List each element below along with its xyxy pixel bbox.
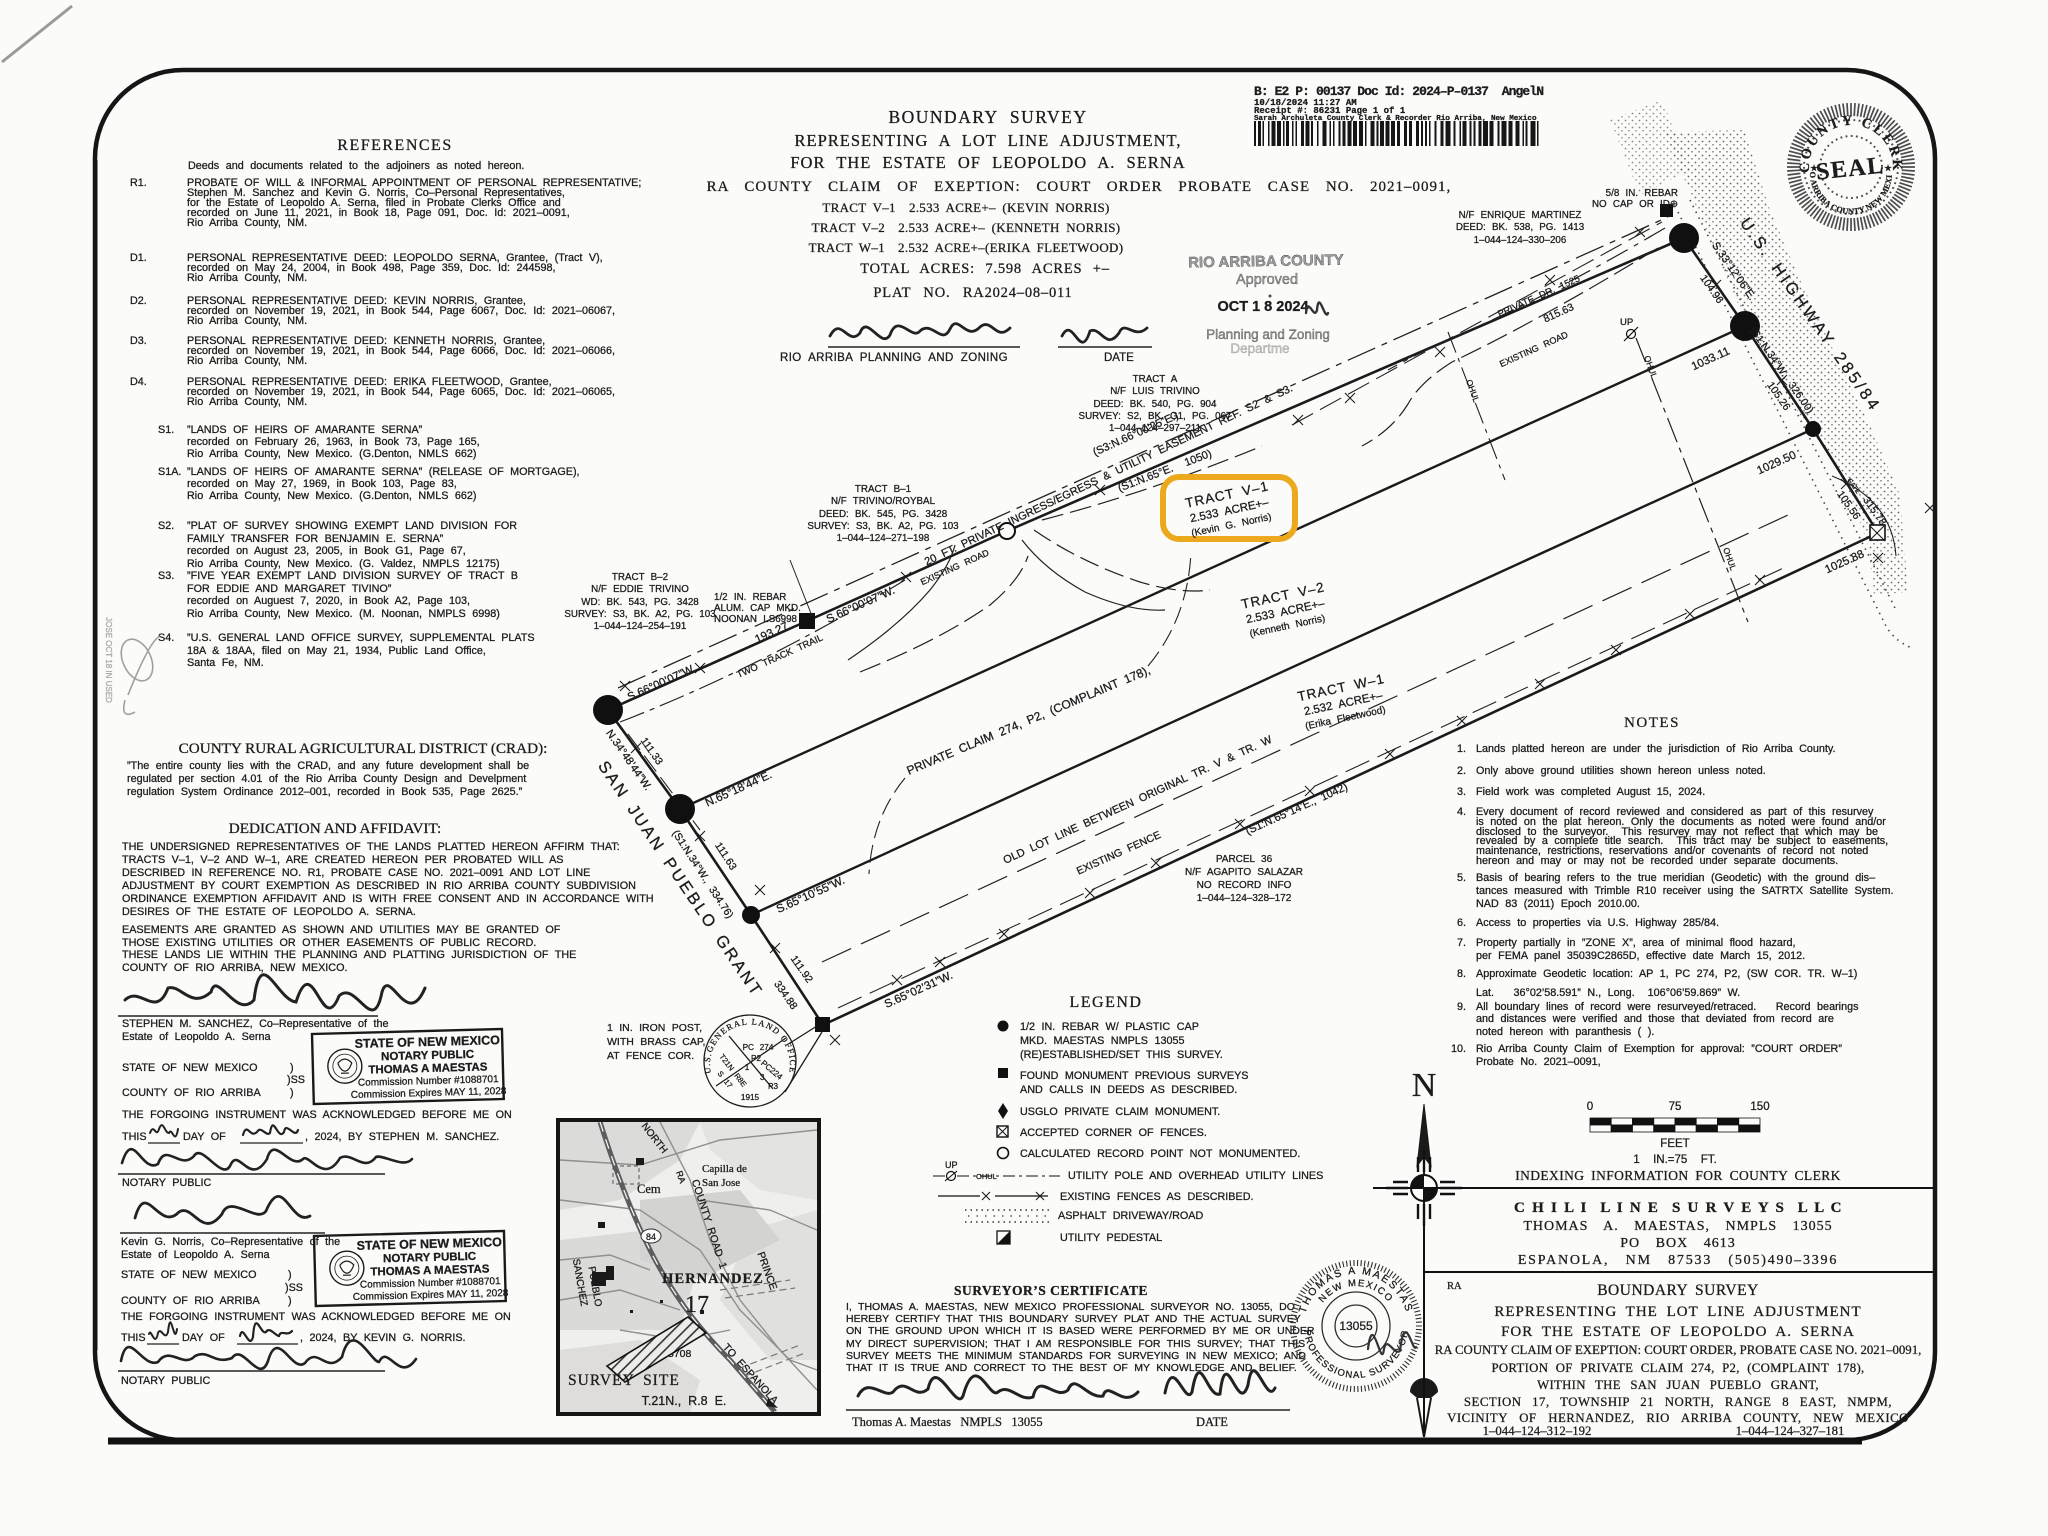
svg-text:DEED: BK. 538, PG. 1413: DEED: BK. 538, PG. 1413 [1456, 222, 1585, 233]
svg-text:TRACT A: TRACT A [1133, 374, 1178, 385]
svg-text:ESPANOLA, NM 87533 (505)490–33: ESPANOLA, NM 87533 (505)490–3396 [1518, 1253, 1838, 1268]
svg-text:Estate of Leopoldo A. Serna: Estate of Leopoldo A. Serna [122, 1031, 270, 1043]
svg-text:1–044–124–254–191: 1–044–124–254–191 [594, 621, 687, 632]
svg-text:D2.: D2. [130, 295, 147, 307]
svg-text:DATE: DATE [1196, 1415, 1228, 1429]
svg-text:Only above ground utilities sh: Only above ground utilities shown hereon… [1476, 765, 1766, 777]
svg-text:104.96: 104.96 [1697, 273, 1725, 306]
svg-text:OCT 1 8 2024: OCT 1 8 2024 [1217, 299, 1308, 315]
svg-text:COUNTY OF RIO ARRIBA: COUNTY OF RIO ARRIBA [122, 1087, 261, 1099]
svg-text:RA COUNTY CLAIM OF EXEPTION: C: RA COUNTY CLAIM OF EXEPTION: COURT ORDER… [707, 179, 1452, 195]
svg-text:SURVEY: S3, BK. A2, PG. 103: SURVEY: S3, BK. A2, PG. 103 [807, 521, 959, 532]
svg-text:10.: 10. [1451, 1043, 1466, 1055]
svg-text:DEDICATION AND AFFIDAVIT:: DEDICATION AND AFFIDAVIT: [229, 820, 441, 837]
svg-text:RA COUNTY CLAIM OF EXEPTION: C: RA COUNTY CLAIM OF EXEPTION: COURT ORDER… [1435, 1343, 1922, 1357]
svg-text:84: 84 [646, 1232, 656, 1242]
svg-text:2.: 2. [1457, 765, 1466, 777]
svg-text:recorded on February 26, 1963,: recorded on February 26, 1963, in Book 7… [187, 436, 480, 448]
svg-text:UTILITY POLE AND OVERHEAD UTIL: UTILITY POLE AND OVERHEAD UTILITY LINES [1068, 1170, 1323, 1182]
svg-text:VICINITY OF HERNANDEZ, RIO ARR: VICINITY OF HERNANDEZ, RIO ARRIBA COUNTY… [1447, 1411, 1909, 1425]
svg-text:S1.: S1. [158, 424, 174, 436]
svg-text:1–044–124–328–172: 1–044–124–328–172 [1197, 893, 1292, 904]
svg-text:Lands platted hereon are under: Lands platted hereon are under the juris… [1476, 743, 1836, 755]
svg-text:1 IN. IRON POST,: 1 IN. IRON POST, [607, 1022, 702, 1034]
svg-text:HEREBY CERTIFY THAT THIS BOUND: HEREBY CERTIFY THAT THIS BOUNDARY SURVEY… [846, 1313, 1301, 1325]
svg-text:THOSE EXISTING UTILITIES OR OT: THOSE EXISTING UTILITIES OR OTHER EASEME… [122, 937, 536, 949]
svg-text:SURVEY MEETS THE MINIMUM STAND: SURVEY MEETS THE MINIMUM STANDARDS FOR S… [846, 1350, 1306, 1362]
svg-text:7.: 7. [1457, 937, 1466, 949]
svg-text:TOTAL ACRES: 7.598 ACRES +–: TOTAL ACRES: 7.598 ACRES +– [860, 261, 1110, 277]
svg-text:Probate No. 2021–0091,: Probate No. 2021–0091, [1476, 1056, 1601, 1068]
svg-text:regulation System Ordinance 20: regulation System Ordinance 2012–001, re… [127, 786, 523, 798]
svg-text:AND CALLS IN DEEDS AS DESCRIBE: AND CALLS IN DEEDS AS DESCRIBED. [1020, 1084, 1237, 1096]
svg-text:NOTARY PUBLIC: NOTARY PUBLIC [121, 1375, 211, 1387]
svg-text:DEED: BK. 540, PG. 904: DEED: BK. 540, PG. 904 [1094, 399, 1217, 410]
svg-text:PARCEL 36: PARCEL 36 [1216, 854, 1273, 865]
svg-text:FEET: FEET [1660, 1138, 1689, 1150]
svg-text:THOMAS A. MAESTAS, NMPLS 13055: THOMAS A. MAESTAS, NMPLS 13055 [1523, 1219, 1832, 1234]
svg-text:CALCULATED RECORD POINT NOT MO: CALCULATED RECORD POINT NOT MONUMENTED. [1020, 1148, 1300, 1160]
svg-text:EXISTING FENCES AS DESCRIBED.: EXISTING FENCES AS DESCRIBED. [1060, 1191, 1254, 1203]
svg-text:OHUL: OHUL [1642, 354, 1660, 380]
svg-text:N.65°18’44”E.: N.65°18’44”E. [704, 769, 774, 809]
svg-text:per FEMA panel 35039C2865D, ef: per FEMA panel 35039C2865D, effective da… [1476, 950, 1805, 962]
svg-text:3.: 3. [1457, 786, 1466, 798]
svg-text:D1.: D1. [130, 252, 147, 264]
svg-text:Rio Arriba County, NM.: Rio Arriba County, NM. [187, 396, 307, 408]
svg-text:TRACT B–1: TRACT B–1 [855, 484, 911, 495]
svg-text:17: 17 [685, 1292, 709, 1318]
svg-text:1/2 IN. REBAR W/ PLASTIC CAP: 1/2 IN. REBAR W/ PLASTIC CAP [1020, 1021, 1199, 1033]
svg-text:Rio Arriba County, New Mexico.: Rio Arriba County, New Mexico. (G. Valde… [187, 558, 500, 570]
svg-text:STATE OF NEW MEXICO: STATE OF NEW MEXICO [121, 1269, 256, 1281]
svg-text:1.: 1. [1457, 743, 1466, 755]
svg-text:1: 1 [745, 1063, 750, 1072]
svg-text:4.: 4. [1457, 806, 1466, 818]
svg-text:S.66°00’07”W.: S.66°00’07”W. [825, 585, 897, 626]
svg-text:STATE OF NEW MEXICO: STATE OF NEW MEXICO [122, 1062, 257, 1074]
svg-text:S3.: S3. [158, 570, 174, 582]
svg-text:NOTARY PUBLIC: NOTARY PUBLIC [122, 1177, 212, 1189]
svg-text:S2.: S2. [158, 520, 174, 532]
svg-text:FAMILY TRANSFER FOR BENJAMIN E: FAMILY TRANSFER FOR BENJAMIN E. SERNA” [187, 533, 444, 545]
svg-text:THAT IT IS TRUE AND CORRECT TO: THAT IT IS TRUE AND CORRECT TO THE BEST … [846, 1362, 1297, 1374]
svg-text:NOONAN LS6998: NOONAN LS6998 [714, 614, 798, 625]
svg-text:TWO TRACK TRAIL: TWO TRACK TRAIL [735, 633, 824, 681]
svg-text:C H I L I L I N E S U R V E: C H I L I L I N E S U R V E Y S L L C [1514, 1200, 1842, 1216]
svg-text:USGLO PRIVATE CLAIM MONUMENT.: USGLO PRIVATE CLAIM MONUMENT. [1020, 1106, 1220, 1118]
svg-text:R1.: R1. [130, 177, 147, 189]
svg-text:REFERENCES: REFERENCES [337, 137, 452, 154]
svg-text:ORDINANCE EXEMPTION AFFIDAVIT: ORDINANCE EXEMPTION AFFIDAVIT AND IS WIT… [122, 893, 654, 905]
svg-text:DESCRIBED IN REFERENCE NO. R1,: DESCRIBED IN REFERENCE NO. R1, PROBATE C… [122, 867, 590, 879]
svg-text:Approximate Geodetic location:: Approximate Geodetic location: AP 1, PC … [1476, 968, 1857, 980]
svg-text:5.: 5. [1457, 872, 1466, 884]
svg-text:Property partially in ”ZONE X”: Property partially in ”ZONE X”, area of … [1476, 937, 1796, 949]
svg-text:PROFESSIONAL SURVEYOR: PROFESSIONAL SURVEYOR [1301, 1329, 1411, 1381]
svg-text:regulated per section 4.01 of: regulated per section 4.01 of the Rio Ar… [127, 773, 526, 785]
svg-text:COUNTY OF RIO ARRIBA, NEW MEXI: COUNTY OF RIO ARRIBA, NEW MEXICO. [122, 962, 347, 974]
svg-text:1915: 1915 [741, 1093, 760, 1102]
svg-text:”The entire county lies with t: ”The entire county lies with the CRAD, a… [127, 760, 529, 772]
svg-text:I, THOMAS A. MAESTAS, NEW MEXI: I, THOMAS A. MAESTAS, NEW MEXICO PROFESS… [846, 1301, 1295, 1313]
svg-text:NOTES: NOTES [1624, 715, 1680, 731]
svg-text:Rio Arriba County, NM.: Rio Arriba County, NM. [187, 315, 307, 327]
svg-text:18A & 18AA, filed on May 21, 1: 18A & 18AA, filed on May 21, 1934, Publi… [187, 645, 486, 657]
svg-text:Rio Arriba County, New Mexico.: Rio Arriba County, New Mexico. (G.Denton… [187, 448, 477, 460]
svg-text:MY DIRECT SUPERVISION; THAT I: MY DIRECT SUPERVISION; THAT I AM RESPONS… [846, 1338, 1305, 1350]
svg-text:N/F TRIVINO/ROYBAL: N/F TRIVINO/ROYBAL [831, 496, 936, 507]
svg-text:SECTION 17, TOWNSHIP 21 NORTH,: SECTION 17, TOWNSHIP 21 NORTH, RANGE 8 E… [1464, 1395, 1892, 1409]
svg-text:AT FENCE COR.: AT FENCE COR. [607, 1050, 694, 1062]
svg-text:TRACT W–1 2.532 ACRE+–(ERIKA: TRACT W–1 2.532 ACRE+–(ERIKA FLEETWOOD) [809, 240, 1124, 255]
svg-text:Santa Fe, NM.: Santa Fe, NM. [187, 657, 264, 669]
svg-text:recorded on August 23, 2005, i: recorded on August 23, 2005, in Book G1,… [187, 545, 466, 557]
svg-text:P2: P2 [751, 1054, 761, 1063]
svg-text:111.92: 111.92 [788, 953, 815, 985]
svg-text:STATE OF NEW MEXICO: STATE OF NEW MEXICO [354, 1033, 500, 1051]
svg-text:NAD 83 (2011) Epoch 2010.00.: NAD 83 (2011) Epoch 2010.00. [1476, 898, 1640, 910]
svg-text:Departme: Departme [1230, 341, 1289, 356]
svg-text:REPRESENTING THE LOT LINE ADJU: REPRESENTING THE LOT LINE ADJUSTMENT [1494, 1304, 1861, 1320]
svg-text:B: E2 P: 00137 Doc Id: 2024–P–: B: E2 P: 00137 Doc Id: 2024–P–0137 Angel… [1254, 84, 1544, 99]
svg-text:N/F EDDIE TRIVINO: N/F EDDIE TRIVINO [591, 584, 689, 595]
svg-text:N/F LUIS TRIVINO: N/F LUIS TRIVINO [1110, 386, 1200, 397]
svg-text:EXISTING ROAD: EXISTING ROAD [1498, 329, 1570, 369]
svg-text:”LANDS OF HEIRS OF AMARANTE SE: ”LANDS OF HEIRS OF AMARANTE SERNA” (RELE… [187, 466, 580, 478]
svg-text:EASEMENTS ARE GRANTED AS SHOWN: EASEMENTS ARE GRANTED AS SHOWN AND UTILI… [122, 924, 561, 936]
svg-text:THESE LANDS LIE WITHIN THE PLA: THESE LANDS LIE WITHIN THE PLANNING AND … [122, 949, 576, 961]
svg-text:All boundary lines of record w: All boundary lines of record were resurv… [1476, 1001, 1859, 1013]
svg-text:FOR THE ESTATE OF LEOPOLDO A.: FOR THE ESTATE OF LEOPOLDO A. SERNA [790, 153, 1185, 172]
svg-text:THIS: THIS [122, 1131, 147, 1143]
svg-text:hereon and may or may not be r: hereon and may or may not be recorded un… [1476, 855, 1838, 867]
svg-text:)SS: )SS [287, 1074, 305, 1086]
svg-text:OHUL: OHUL [1464, 378, 1482, 404]
svg-text:): ) [288, 1269, 292, 1281]
svg-text:RA: RA [1447, 1281, 1462, 1292]
svg-text:NOTARY PUBLIC: NOTARY PUBLIC [381, 1049, 474, 1063]
svg-text:DAY OF: DAY OF [182, 1332, 225, 1344]
svg-text:1/2 IN. REBAR: 1/2 IN. REBAR [714, 592, 786, 603]
svg-text:DATE: DATE [1104, 352, 1134, 364]
svg-text:THIS: THIS [121, 1332, 146, 1344]
svg-text:111.63: 111.63 [712, 840, 739, 872]
svg-text:)SS: )SS [285, 1282, 303, 1294]
svg-text:6.: 6. [1457, 917, 1466, 929]
svg-text:1–044–124–297–211: 1–044–124–297–211 [1109, 423, 1201, 434]
svg-text:MKD. MAESTAS NMPLS 13055: MKD. MAESTAS NMPLS 13055 [1020, 1035, 1185, 1047]
svg-text:111.33: 111.33 [638, 735, 665, 767]
svg-text:75: 75 [1669, 1101, 1682, 1113]
svg-text:150: 150 [1750, 1101, 1769, 1113]
svg-text:Rio Arriba County, New Mexico.: Rio Arriba County, New Mexico. (M. Noona… [187, 608, 500, 620]
svg-text:3: 3 [760, 1073, 765, 1082]
svg-text:ALUM. CAP MKD.: ALUM. CAP MKD. [714, 603, 801, 614]
svg-text:1–044–124–312–192: 1–044–124–312–192 [1483, 1424, 1592, 1438]
svg-text:COUNTY RURAL AGRICULTURAL DIST: COUNTY RURAL AGRICULTURAL DISTRICT (CRAD… [179, 740, 548, 757]
svg-text:P3: P3 [768, 1082, 778, 1091]
svg-text:recorded on May 27, 1969, in B: recorded on May 27, 1969, in Book 103, P… [187, 478, 457, 490]
svg-text:0: 0 [1587, 1101, 1593, 1113]
svg-text:N: N [1412, 1067, 1437, 1104]
svg-text:THOMAS A MAESTAS: THOMAS A MAESTAS [1297, 1265, 1415, 1315]
svg-text:OHUL: OHUL [976, 1172, 997, 1181]
svg-text:tances measured with Trimble R: tances measured with Trimble R10 receive… [1476, 885, 1893, 897]
svg-text:9.: 9. [1457, 1001, 1466, 1013]
svg-text:DESIRES OF THE ESTATE OF LEOPO: DESIRES OF THE ESTATE OF LEOPOLDO A. SER… [122, 906, 416, 918]
svg-text:Cem: Cem [637, 1182, 661, 1196]
svg-text:UP: UP [945, 1160, 958, 1170]
svg-text:PRIVATE CLAIM 274, P2, (COMPLA: PRIVATE CLAIM 274, P2, (COMPLAINT 178), [905, 663, 1153, 778]
svg-text:Rio Arriba County, NM.: Rio Arriba County, NM. [187, 217, 307, 229]
svg-text:FOR THE ESTATE OF LEOPOLDO A.: FOR THE ESTATE OF LEOPOLDO A. SERNA [1501, 1324, 1855, 1340]
svg-text:Estate of Leopoldo A. Serna: Estate of Leopoldo A. Serna [121, 1249, 269, 1261]
svg-text:TRACT V–2 2.533 ACRE+– (KENNE: TRACT V–2 2.533 ACRE+– (KENNETH NORRIS) [812, 220, 1121, 235]
svg-text:NO RECORD INFO: NO RECORD INFO [1197, 880, 1292, 891]
svg-text:TRACT B–2: TRACT B–2 [612, 572, 668, 583]
svg-text:5/8 IN. REBAR: 5/8 IN. REBAR [1606, 188, 1678, 199]
svg-text:NO CAP OR ID⊕: NO CAP OR ID⊕ [1592, 199, 1678, 210]
svg-text:recorded on Auguest 7, 2020, i: recorded on Auguest 7, 2020, in Book A2,… [187, 595, 470, 607]
svg-text:1033.11: 1033.11 [1690, 345, 1732, 373]
svg-text:PO BOX 4613: PO BOX 4613 [1620, 1236, 1735, 1251]
svg-text:Approved: Approved [1236, 272, 1298, 288]
svg-text:noted hereon with paranthesis: noted hereon with paranthesis ( ). [1476, 1026, 1654, 1038]
svg-text:NOTARY PUBLIC: NOTARY PUBLIC [383, 1251, 476, 1265]
svg-text:8.: 8. [1457, 968, 1466, 980]
svg-text:”FIVE YEAR EXEMPT LAND DIVISIO: ”FIVE YEAR EXEMPT LAND DIVISION SURVEY O… [187, 570, 518, 582]
svg-text:STEPHEN M. SANCHEZ, Co–Represe: STEPHEN M. SANCHEZ, Co–Representative of… [122, 1018, 389, 1030]
svg-text:DAY OF: DAY OF [183, 1131, 226, 1143]
svg-text:SEAL: SEAL [1815, 153, 1886, 186]
svg-text:Access to properties via U.S.: Access to properties via U.S. Highway 28… [1476, 917, 1719, 929]
svg-text:ASPHALT DRIVEWAY/ROAD: ASPHALT DRIVEWAY/ROAD [1058, 1210, 1203, 1222]
svg-text:ADJUSTMENT BY COURT EXEMPTION: ADJUSTMENT BY COURT EXEMPTION AS DESCRIB… [122, 880, 636, 892]
svg-text:and distances were verified an: and distances were verified and those th… [1476, 1013, 1834, 1025]
svg-text:LEGEND: LEGEND [1070, 994, 1143, 1011]
svg-text:REPRESENTING A LOT LINE ADJUST: REPRESENTING A LOT LINE ADJUSTMENT, [794, 131, 1181, 150]
svg-text:WITH BRASS CAP,: WITH BRASS CAP, [607, 1036, 705, 1048]
svg-text:UTILITY PEDESTAL: UTILITY PEDESTAL [1060, 1232, 1162, 1244]
svg-text:INDEXING INFORMATION FOR COUNT: INDEXING INFORMATION FOR COUNTY CLERK [1515, 1168, 1841, 1183]
svg-text:THE FORGOING INSTRUMENT WAS AC: THE FORGOING INSTRUMENT WAS ACKNOWLEDGED… [121, 1311, 511, 1323]
svg-text:Capilla de: Capilla de [702, 1163, 747, 1175]
svg-text:SURVEY: S3, BK. A2, PG. 103: SURVEY: S3, BK. A2, PG. 103 [564, 609, 716, 620]
svg-text:THE UNDERSIGNED REPRESENTATIVE: THE UNDERSIGNED REPRESENTATIVES OF THE L… [122, 841, 620, 853]
svg-text:SURVEYOR’S CERTIFICATE: SURVEYOR’S CERTIFICATE [954, 1283, 1148, 1298]
svg-text:S.66°00’07”W.: S.66°00’07”W. [626, 663, 698, 704]
svg-text:N/F AGAPITO SALAZAR: N/F AGAPITO SALAZAR [1185, 867, 1303, 878]
svg-text:ON THE GROUND UPON WHICH IT IS: ON THE GROUND UPON WHICH IT IS BASED WER… [846, 1325, 1315, 1337]
svg-text:S.65°10’55”W.: S.65°10’55”W. [775, 875, 847, 916]
svg-text:Thomas A. Maestas NMPLS 13: Thomas A. Maestas NMPLS 13055 [852, 1415, 1043, 1429]
svg-text:(S1:N.65°14’E., 1042): (S1:N.65°14’E., 1042) [1244, 781, 1350, 837]
svg-text:13055: 13055 [1339, 1319, 1373, 1333]
svg-text:RIO ARRIBA COUNTY: RIO ARRIBA COUNTY [1188, 252, 1344, 272]
svg-text:”PLAT OF SURVEY SHOWING EXEMPT: ”PLAT OF SURVEY SHOWING EXEMPT LAND DIVI… [187, 520, 517, 532]
svg-text:TRACTS V–1, V–2 AND W–1, ARE C: TRACTS V–1, V–2 AND W–1, ARE CREATED HER… [122, 854, 564, 866]
svg-text:Rio Arriba County, NM.: Rio Arriba County, NM. [187, 355, 307, 367]
svg-text:COUNTY OF RIO ARRIBA: COUNTY OF RIO ARRIBA [121, 1295, 260, 1307]
svg-text:DEED: BK. 545, PG. 3428: DEED: BK. 545, PG. 3428 [819, 509, 948, 520]
svg-text:Planning and Zoning: Planning and Zoning [1206, 327, 1330, 342]
svg-text:, 2024, BY STEPHEN M. SANCHEZ.: , 2024, BY STEPHEN M. SANCHEZ. [305, 1131, 499, 1143]
svg-text:815.63: 815.63 [1542, 301, 1576, 325]
svg-text:WD: BK. 543, PG. 3428: WD: BK. 543, PG. 3428 [581, 597, 699, 608]
svg-text:S1A.: S1A. [158, 466, 181, 478]
svg-text:EXISTING FENCE: EXISTING FENCE [1075, 829, 1163, 877]
svg-text:FOR EDDIE AND MARGARET TIVINO”: FOR EDDIE AND MARGARET TIVINO” [187, 583, 392, 595]
svg-text:): ) [288, 1295, 292, 1307]
svg-text:THE FORGOING INSTRUMENT WAS AC: THE FORGOING INSTRUMENT WAS ACKNOWLEDGED… [122, 1109, 512, 1121]
svg-text:): ) [290, 1087, 294, 1099]
svg-text:San Jose: San Jose [702, 1177, 740, 1189]
svg-text:Rio Arriba County, NM.: Rio Arriba County, NM. [187, 272, 307, 284]
svg-text:Kevin G. Norris, Co–Representa: Kevin G. Norris, Co–Representative of th… [121, 1236, 340, 1248]
svg-text:PLAT NO. RA2024–08–011: PLAT NO. RA2024–08–011 [873, 285, 1072, 301]
svg-text:, 2024, BY KEVIN G. NORRIS.: , 2024, BY KEVIN G. NORRIS. [300, 1332, 466, 1344]
svg-text:WITHIN THE SAN JUAN PUEBLO GRA: WITHIN THE SAN JUAN PUEBLO GRANT, [1537, 1378, 1819, 1392]
svg-text:HERNANDEZ: HERNANDEZ [662, 1271, 764, 1287]
svg-text:RIO ARRIBA PLANNING AND ZONING: RIO ARRIBA PLANNING AND ZONING [780, 352, 1008, 364]
svg-text:”LANDS OF HEIRS OF AMARANTE SE: ”LANDS OF HEIRS OF AMARANTE SERNA” [187, 424, 423, 436]
svg-text:): ) [290, 1062, 294, 1074]
svg-text:D4.: D4. [130, 376, 147, 388]
svg-text:D3.: D3. [130, 335, 147, 347]
svg-text:1 IN.=75 FT.: 1 IN.=75 FT. [1633, 1154, 1716, 1166]
svg-text:SURVEY SITE: SURVEY SITE [568, 1372, 680, 1389]
svg-text:ACCEPTED CORNER OF FENCES.: ACCEPTED CORNER OF FENCES. [1020, 1127, 1207, 1139]
svg-text:1–044–124–330–206: 1–044–124–330–206 [1474, 235, 1567, 246]
svg-text:S4.: S4. [158, 632, 174, 644]
svg-text:TRACT V–1 2.533 ACRE+– (KEVIN: TRACT V–1 2.533 ACRE+– (KEVIN NORRIS) [822, 200, 1109, 215]
svg-text:Basis of bearing refers to the: Basis of bearing refers to the true meri… [1476, 872, 1875, 884]
svg-text:★: ★ [1884, 163, 1892, 173]
svg-text:Rio Arriba County, New Mexico.: Rio Arriba County, New Mexico. (G.Denton… [187, 490, 477, 502]
svg-text:BOUNDARY SURVEY: BOUNDARY SURVEY [888, 107, 1087, 127]
svg-text:N/F ENRIQUE MARTINEZ: N/F ENRIQUE MARTINEZ [1459, 210, 1582, 221]
svg-text:JOSE OCT 18 IN USED: JOSE OCT 18 IN USED [104, 617, 113, 703]
svg-text:Rio Arriba County Claim of Exe: Rio Arriba County Claim of Exemption for… [1476, 1043, 1842, 1055]
svg-text:Lat. 36°02’58.591” N., Long.: Lat. 36°02’58.591” N., Long. 106°06’59.8… [1476, 987, 1740, 999]
svg-text:1–044–124–327–181: 1–044–124–327–181 [1736, 1424, 1845, 1438]
svg-text:Deeds and documents related to: Deeds and documents related to the adjoi… [188, 160, 524, 172]
svg-text:SURVEY: S2, BK. G1, PG. 067: SURVEY: S2, BK. G1, PG. 067 [1079, 411, 1232, 422]
svg-text:(RE)ESTABLISHED/SET THIS SURVE: (RE)ESTABLISHED/SET THIS SURVEY. [1020, 1049, 1223, 1061]
svg-text:Field work was completed Augus: Field work was completed August 15, 2024… [1476, 786, 1705, 798]
svg-text:BOUNDARY SURVEY: BOUNDARY SURVEY [1597, 1282, 1759, 1299]
svg-text:T.21N., R.8 E.: T.21N., R.8 E. [642, 1394, 727, 1408]
svg-text:PORTION OF PRIVATE CLAIM 274,: PORTION OF PRIVATE CLAIM 274, P2, (COMPL… [1491, 1361, 1864, 1375]
svg-text:1–044–124–271–198: 1–044–124–271–198 [837, 533, 930, 544]
svg-text:”U.S. GENERAL LAND OFFICE SURV: ”U.S. GENERAL LAND OFFICE SURVEY, SUPPLE… [187, 632, 535, 644]
svg-text:UP: UP [1620, 317, 1633, 328]
svg-text:STATE OF NEW MEXICO: STATE OF NEW MEXICO [356, 1235, 502, 1253]
svg-text:PC 274: PC 274 [743, 1043, 774, 1052]
svg-text:FOUND MONUMENT PREVIOUS SURVEY: FOUND MONUMENT PREVIOUS SURVEYS [1020, 1070, 1248, 1082]
